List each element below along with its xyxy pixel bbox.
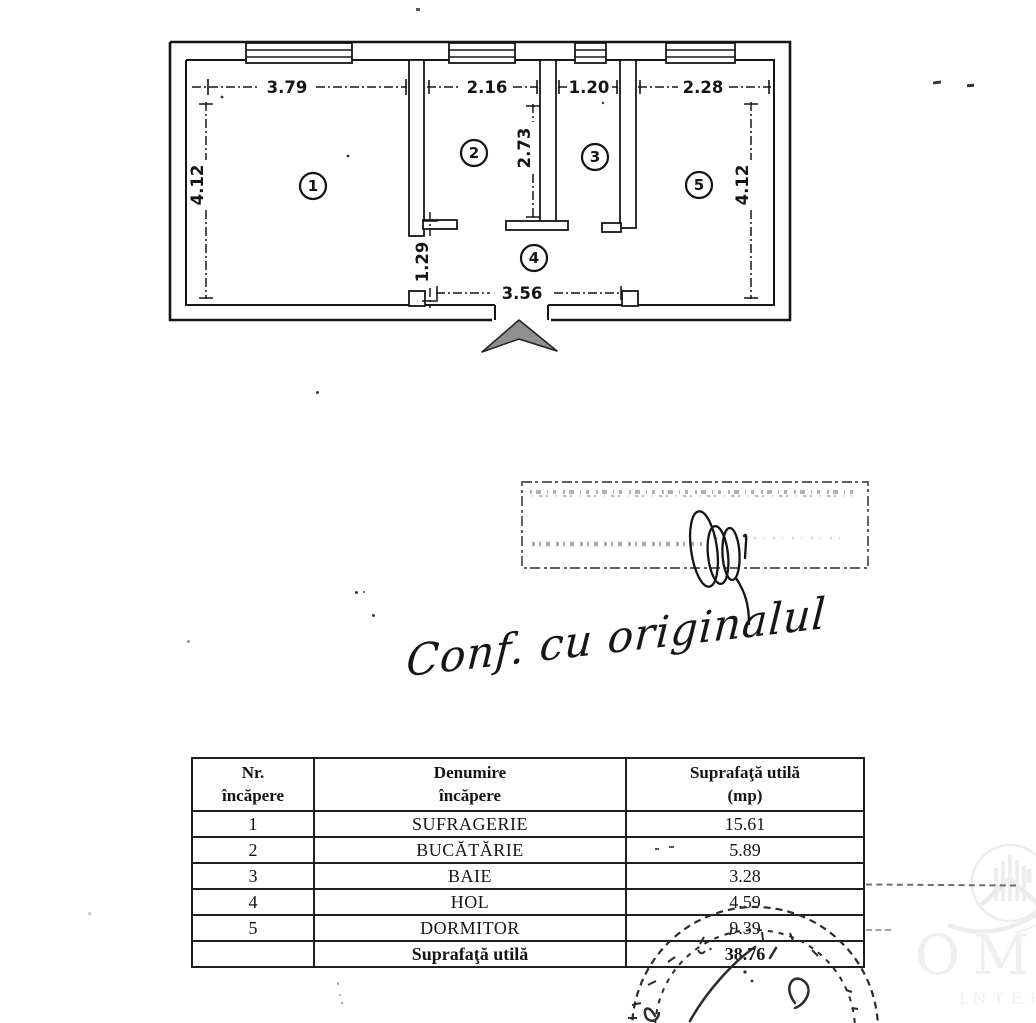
dimension-lines <box>192 87 771 308</box>
table-row: 2 BUCĂTĂRIE 5.89 <box>192 837 864 863</box>
header-suprafata: Suprafaţă utilă (mp) <box>626 758 864 811</box>
scan-speck <box>967 84 974 88</box>
dim-right-height: 4.12 <box>733 165 752 206</box>
cell-area: 4.59 <box>626 889 864 915</box>
header-denumire: Denumire încăpere <box>314 758 626 811</box>
handwritten-note-text: Conf. cu originalul <box>405 589 828 688</box>
dimension-ticks <box>199 79 769 301</box>
scan-speck <box>341 1002 343 1004</box>
scan-speck <box>355 591 358 594</box>
window-room1 <box>246 43 352 63</box>
cell-name: BUCĂTĂRIE <box>314 837 626 863</box>
scan-dash-line <box>866 929 891 931</box>
cell-area: 38.76 <box>626 941 864 967</box>
scan-speck <box>88 912 91 915</box>
handwritten-note: Conf. cu originalul <box>395 583 845 728</box>
cell-name: SUFRAGERIE <box>314 811 626 837</box>
scan-speck <box>655 848 659 850</box>
scan-speck <box>339 994 341 996</box>
entrance-gap-jambs <box>495 305 548 320</box>
scan-speck <box>669 846 674 848</box>
header-suprafata-line2: (mp) <box>627 785 863 808</box>
table-total-row: Suprafaţă utilă 38.76 <box>192 941 864 967</box>
scan-speck <box>933 80 941 84</box>
room-1-label: 1 <box>308 177 318 195</box>
table-row: 3 BAIE 3.28 <box>192 863 864 889</box>
dim-room2-width: 2.16 <box>467 78 508 97</box>
table-header-row: Nr. încăpere Denumire încăpere Suprafaţă… <box>192 758 864 811</box>
watermark-subtext: INTER <box>959 989 1036 1008</box>
window-room3 <box>575 43 606 63</box>
header-nr-line2: încăpere <box>193 785 313 808</box>
room-labels <box>300 140 712 271</box>
dim-room3-width: 1.20 <box>569 78 610 97</box>
cell-name: HOL <box>314 889 626 915</box>
cell-name: Suprafaţă utilă <box>314 941 626 967</box>
floor-plan: 3.79 2.16 1.20 2.28 4.12 2.73 4.12 1.29 … <box>160 30 820 360</box>
cell-nr: 2 <box>192 837 314 863</box>
header-suprafata-line1: Suprafaţă utilă <box>627 762 863 785</box>
dim-left-height: 4.12 <box>188 165 207 206</box>
cell-nr <box>192 941 314 967</box>
scan-speck <box>416 8 420 11</box>
cell-nr: 1 <box>192 811 314 837</box>
area-table: Nr. încăpere Denumire încăpere Suprafaţă… <box>191 757 865 968</box>
dim-hall-width: 3.56 <box>502 284 543 303</box>
cell-nr: 4 <box>192 889 314 915</box>
table-row: 4 HOL 4.59 <box>192 889 864 915</box>
cell-nr: 5 <box>192 915 314 941</box>
entrance-arrow-icon <box>482 320 557 352</box>
watermark-house-icon <box>893 813 1036 933</box>
room-3-label: 3 <box>590 148 600 166</box>
room-2-label: 2 <box>469 144 479 162</box>
stamp-dots <box>743 970 753 982</box>
scan-speck <box>337 982 339 985</box>
dim-kitchen-depth: 2.73 <box>515 128 534 169</box>
scan-speck <box>372 614 375 617</box>
room-4-label: 4 <box>529 249 539 267</box>
window-room5 <box>666 43 735 63</box>
scan-speck <box>187 640 190 643</box>
cell-area: 5.89 <box>626 837 864 863</box>
cell-nr: 3 <box>192 863 314 889</box>
window-room2 <box>449 43 515 63</box>
watermark-logo: OME INTER <box>893 813 1036 1023</box>
room-5-label: 5 <box>694 176 704 194</box>
watermark-text: OME <box>915 923 1036 987</box>
scanned-document-page: 3.79 2.16 1.20 2.28 4.12 2.73 4.12 1.29 … <box>0 0 1036 1023</box>
cell-area: 3.28 <box>626 863 864 889</box>
scan-speck <box>363 591 365 593</box>
header-nr: Nr. încăpere <box>192 758 314 811</box>
table-row: 1 SUFRAGERIE 15.61 <box>192 811 864 837</box>
dim-room5-width: 2.28 <box>683 78 724 97</box>
cell-name: BAIE <box>314 863 626 889</box>
cell-name: DORMITOR <box>314 915 626 941</box>
table-row: 5 DORMITOR 9.39 <box>192 915 864 941</box>
cell-area: 9.39 <box>626 915 864 941</box>
dim-door-gap: 1.29 <box>413 242 432 283</box>
header-nr-line1: Nr. <box>193 762 313 785</box>
header-denumire-line1: Denumire <box>315 762 625 785</box>
cell-area: 15.61 <box>626 811 864 837</box>
dim-room1-width: 3.79 <box>267 78 308 97</box>
header-denumire-line2: încăpere <box>315 785 625 808</box>
scan-speck <box>316 391 319 394</box>
